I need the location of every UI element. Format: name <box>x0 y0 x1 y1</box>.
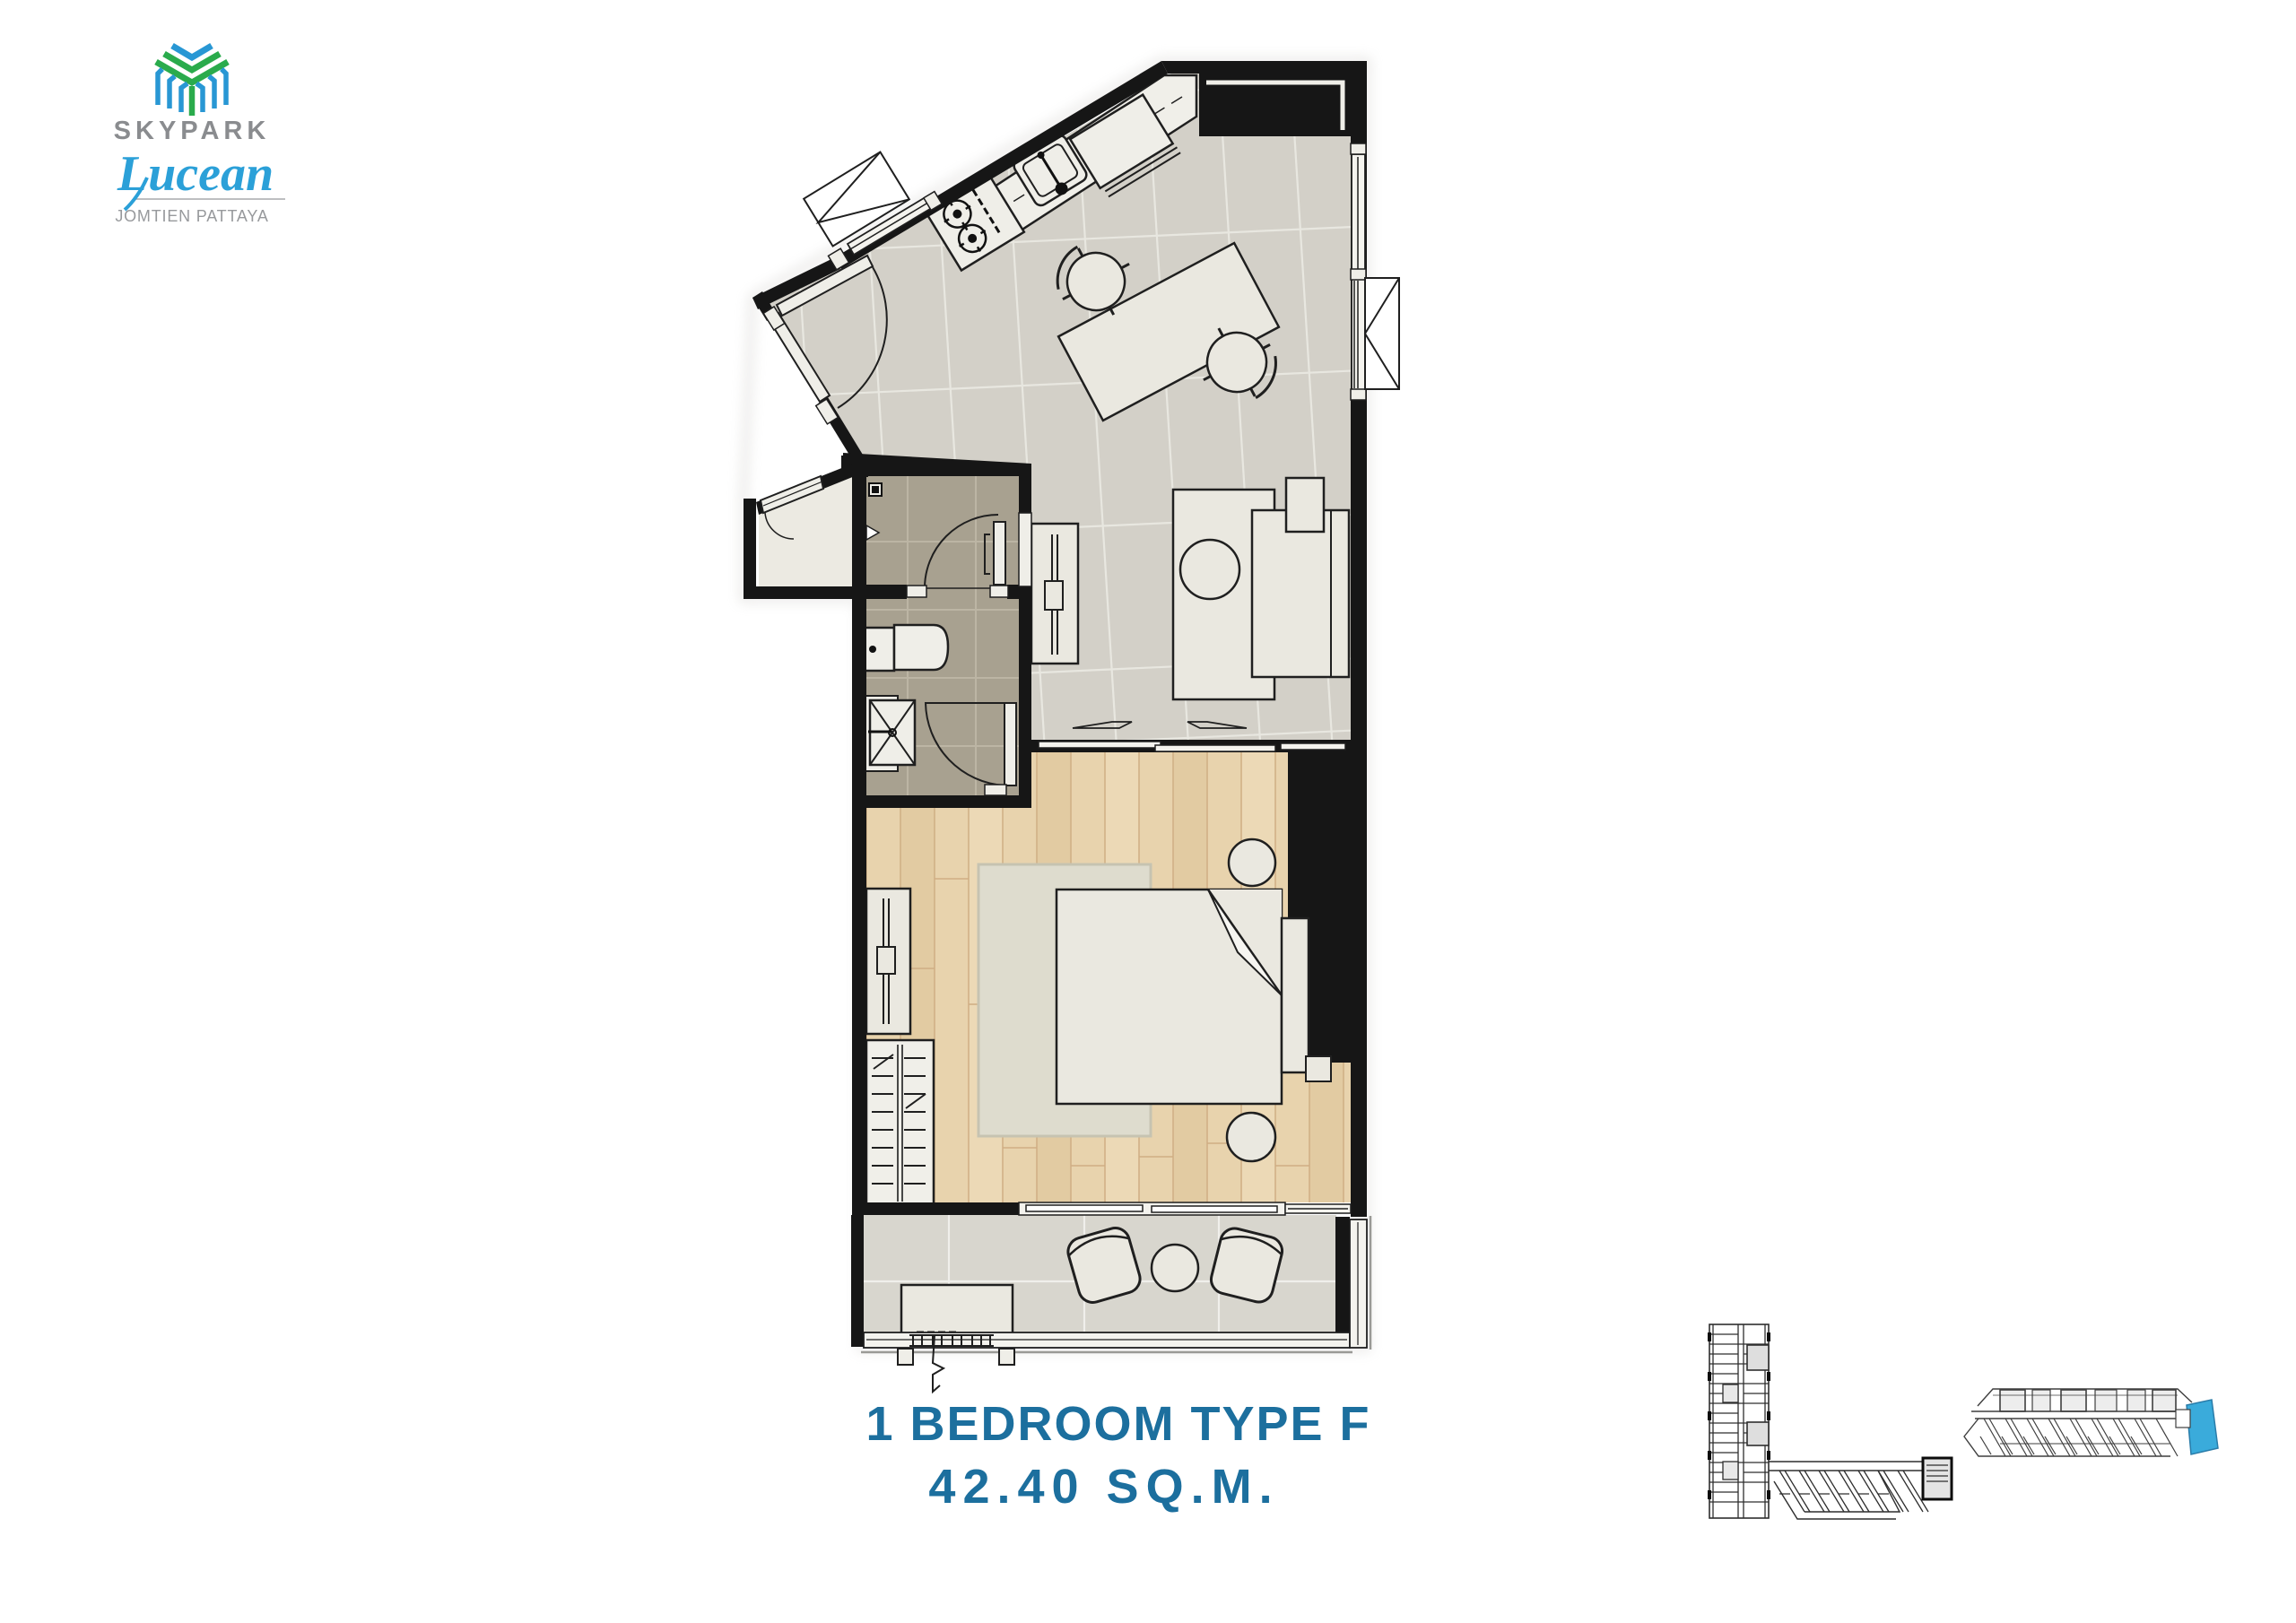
svg-text:JOMTIEN PATTAYA: JOMTIEN PATTAYA <box>115 207 268 225</box>
svg-text:SKYPARK: SKYPARK <box>114 117 271 145</box>
svg-text:1 BEDROOM TYPE F: 1 BEDROOM TYPE F <box>865 1397 1370 1451</box>
svg-text:42.40 SQ.M.: 42.40 SQ.M. <box>928 1460 1279 1514</box>
